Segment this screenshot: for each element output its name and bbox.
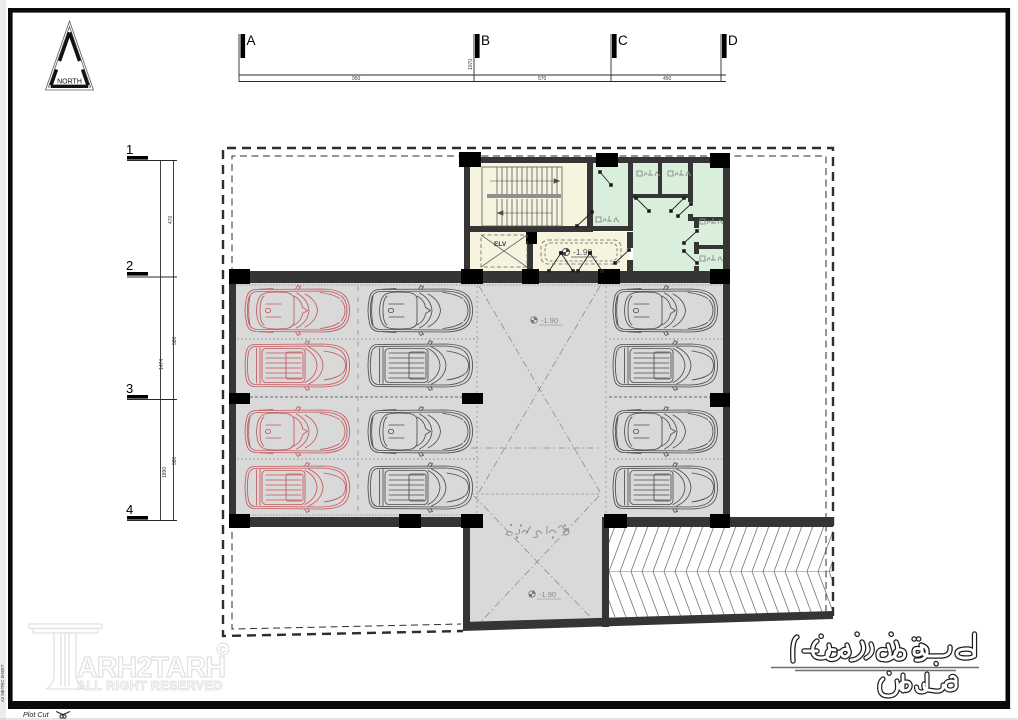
svg-text:1: 1 — [126, 142, 133, 157]
svg-text:3: 3 — [126, 381, 133, 396]
svg-text:1890: 1890 — [162, 467, 168, 478]
svg-text:D: D — [728, 33, 738, 48]
svg-text:580: 580 — [172, 336, 178, 345]
svg-text:C: C — [618, 33, 628, 48]
svg-text:NORTH: NORTH — [57, 79, 82, 86]
svg-text:590: 590 — [172, 456, 178, 465]
svg-text:Plot Cut: Plot Cut — [23, 710, 50, 719]
svg-text:1474: 1474 — [159, 359, 165, 370]
svg-text:C: C — [220, 645, 226, 655]
svg-text:-1.90: -1.90 — [539, 590, 556, 599]
svg-text:ELV: ELV — [494, 241, 507, 248]
svg-text:ALL RIGHT RESERVED: ALL RIGHT RESERVED — [77, 679, 223, 693]
svg-text:950: 950 — [352, 76, 361, 82]
svg-text:B: B — [481, 33, 490, 48]
svg-text:450: 450 — [663, 76, 672, 82]
svg-text:A3 METRIC SHEET: A3 METRIC SHEET — [0, 664, 5, 702]
svg-text:A: A — [247, 33, 256, 48]
svg-text:-1.90: -1.90 — [541, 316, 558, 325]
svg-text:570: 570 — [538, 76, 547, 82]
svg-text:4: 4 — [126, 502, 133, 517]
svg-text:470: 470 — [168, 215, 174, 224]
svg-text:1070: 1070 — [468, 59, 474, 70]
svg-text:2: 2 — [126, 258, 133, 273]
